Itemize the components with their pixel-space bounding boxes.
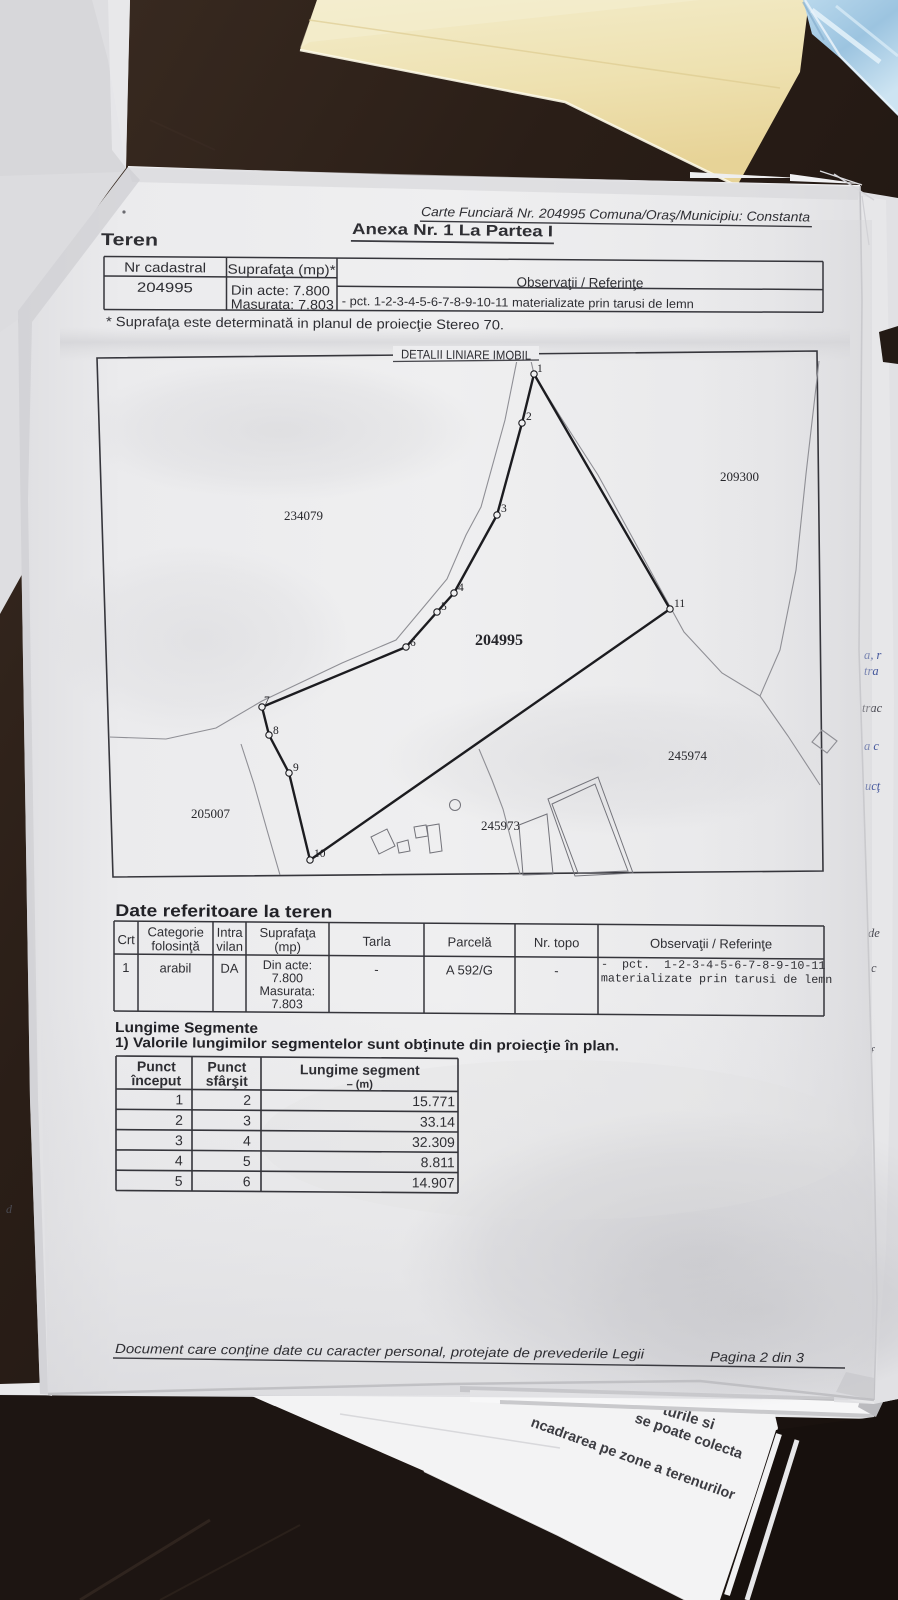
svg-text:2: 2 <box>243 1092 251 1108</box>
svg-text:(mp): (mp) <box>274 939 301 954</box>
svg-text:Nr cadastral: Nr cadastral <box>124 260 206 276</box>
svg-text:Masurata: 7.803: Masurata: 7.803 <box>231 297 334 313</box>
svg-text:Observaţii / Referinţe: Observaţii / Referinţe <box>650 936 772 952</box>
svg-text:Lungime segment: Lungime segment <box>300 1061 420 1078</box>
svg-text:7: 7 <box>264 695 270 707</box>
svg-text:2: 2 <box>175 1112 183 1128</box>
svg-text:Suprafaţa: Suprafaţa <box>259 925 316 940</box>
svg-text:– (m): – (m) <box>347 1079 374 1091</box>
svg-text:Intra: Intra <box>217 925 244 940</box>
svg-text:9: 9 <box>293 762 299 774</box>
svg-text:3: 3 <box>175 1132 183 1148</box>
svg-text:materializate prin tarusi de l: materializate prin tarusi de lemn <box>601 971 833 987</box>
svg-text:4: 4 <box>175 1152 183 1168</box>
svg-text:205007: 205007 <box>191 806 231 821</box>
svg-text:10: 10 <box>314 848 326 860</box>
svg-text:Crt: Crt <box>117 932 135 947</box>
svg-text:1: 1 <box>122 960 129 975</box>
svg-text:3: 3 <box>243 1112 251 1128</box>
svg-text:Anexa Nr. 1 La Partea I: Anexa Nr. 1 La Partea I <box>352 221 553 240</box>
svg-text:11: 11 <box>674 598 685 610</box>
svg-text:început: început <box>130 1072 181 1088</box>
svg-text:3: 3 <box>501 503 507 515</box>
svg-text:5: 5 <box>175 1173 183 1189</box>
svg-text:33.14: 33.14 <box>420 1114 455 1130</box>
svg-text:6: 6 <box>243 1173 251 1189</box>
svg-text:7.803: 7.803 <box>272 997 303 1011</box>
svg-text:Nr. topo: Nr. topo <box>534 935 580 950</box>
svg-text:arabil: arabil <box>159 960 191 975</box>
svg-text:Pagina 2 din 3: Pagina 2 din 3 <box>710 1349 805 1365</box>
svg-text:5: 5 <box>243 1153 251 1169</box>
svg-text:245974: 245974 <box>668 748 708 763</box>
svg-text:A 592/G: A 592/G <box>446 962 493 977</box>
svg-text:folosinţă: folosinţă <box>151 938 200 953</box>
svg-text:204995: 204995 <box>475 632 523 649</box>
svg-text:14.907: 14.907 <box>412 1174 455 1190</box>
svg-text:-: - <box>554 963 558 978</box>
svg-text:2: 2 <box>526 411 532 423</box>
svg-text:32.309: 32.309 <box>412 1134 455 1150</box>
svg-text:245973: 245973 <box>481 818 520 833</box>
svg-text:Date referitoare la teren: Date referitoare la teren <box>115 901 332 922</box>
svg-text:-: - <box>374 962 378 977</box>
svg-text:234079: 234079 <box>284 508 323 523</box>
svg-text:204995: 204995 <box>137 280 193 295</box>
svg-text:8.811: 8.811 <box>421 1154 455 1170</box>
svg-text:d: d <box>6 1202 13 1216</box>
svg-text:DETALII LINIARE IMOBIL: DETALII LINIARE IMOBIL <box>401 347 531 362</box>
svg-text:vilan: vilan <box>216 939 243 954</box>
svg-text:6: 6 <box>410 637 416 649</box>
svg-text:Observaţii / Referinţe: Observaţii / Referinţe <box>517 275 644 291</box>
svg-text:4: 4 <box>458 582 464 594</box>
svg-text:Suprafaţa (mp)*: Suprafaţa (mp)* <box>228 262 337 278</box>
svg-text:- pct. 1-2-3-4-5-6-7-8-9-10-: - pct. 1-2-3-4-5-6-7-8-9-10-11 <box>601 957 826 973</box>
svg-text:Tarla: Tarla <box>362 934 391 949</box>
svg-text:Teren: Teren <box>101 230 158 250</box>
svg-text:DA: DA <box>220 961 238 976</box>
svg-text:209300: 209300 <box>720 469 759 484</box>
svg-text:1: 1 <box>175 1091 183 1107</box>
svg-text:5: 5 <box>441 601 447 613</box>
svg-text:1: 1 <box>537 363 543 375</box>
svg-text:Parcelă: Parcelă <box>448 934 493 949</box>
svg-text:8: 8 <box>273 725 279 737</box>
svg-text:sfârşit: sfârşit <box>206 1073 248 1089</box>
svg-text:15.771: 15.771 <box>412 1093 455 1109</box>
svg-text:4: 4 <box>243 1133 251 1149</box>
